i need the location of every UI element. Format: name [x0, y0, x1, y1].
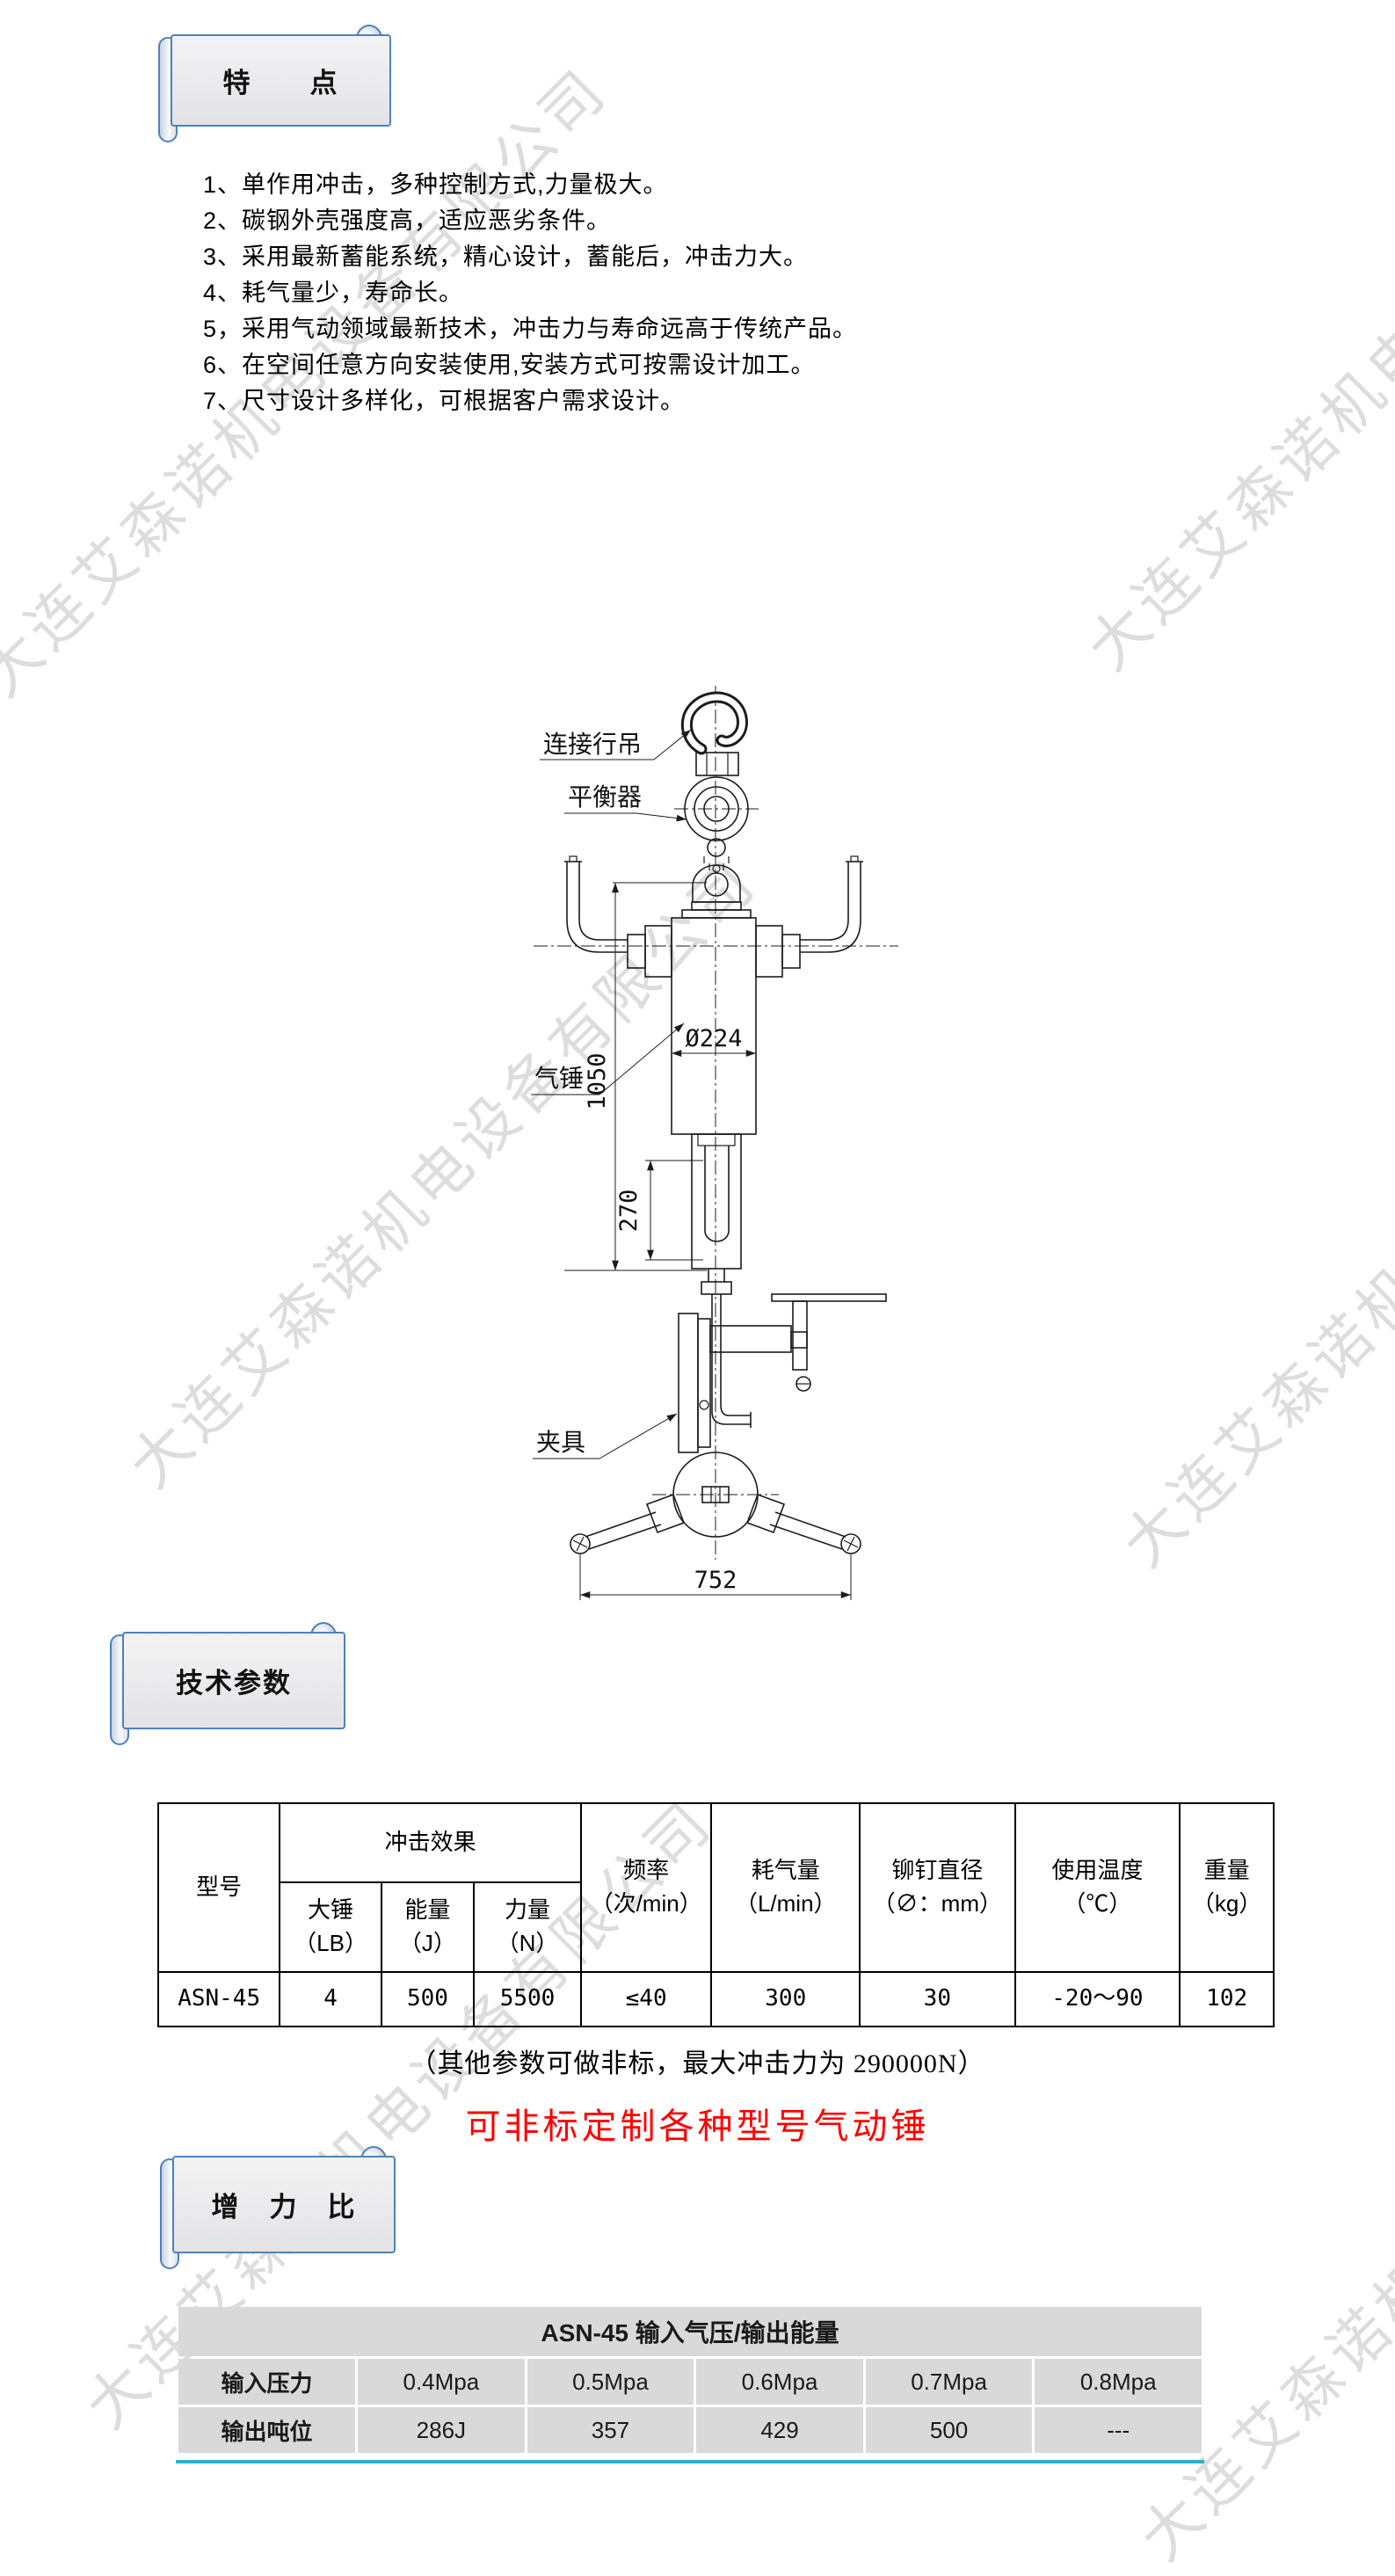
watermark-text: 大连艾森诺机电设备有限公司	[1099, 914, 1395, 1582]
feature-item: 4、耗气量少，寿命长。	[203, 275, 857, 311]
label-hammer: 气锤	[534, 1065, 584, 1092]
col-weight: 重量（kg）	[1180, 1803, 1274, 1972]
feature-item: 2、碳钢外壳强度高，适应恶劣条件。	[203, 203, 857, 239]
ratio-table-title: ASN-45 输入气压/输出能量	[178, 2307, 1202, 2356]
col-air: 耗气量（L/min）	[711, 1803, 860, 1972]
pressure-value: 0.6Mpa	[696, 2359, 863, 2405]
features-list: 1、单作用冲击，多种控制方式,力量极大。 2、碳钢外壳强度高，适应恶劣条件。 3…	[203, 167, 857, 419]
dim-diameter: Ø224	[685, 1025, 742, 1052]
col-impact-group: 冲击效果	[280, 1803, 581, 1882]
cell-weight: 102	[1180, 1972, 1274, 2027]
banner-specs-title: 技术参数	[122, 1632, 345, 1729]
feature-item: 7、尺寸设计多样化，可根据客户需求设计。	[203, 383, 857, 419]
watermark-text: 大连艾森诺机电设备有限公司	[1064, 18, 1395, 685]
ratio-table-wrap: ASN-45 输入气压/输出能量 输入压力 0.4Mpa 0.5Mpa 0.6M…	[176, 2304, 1204, 2463]
banner-features-title: 特 点	[171, 34, 391, 127]
banner-features: 特 点	[158, 25, 391, 142]
feature-item: 5，采用气动领域最新技术，冲击力与寿命远高于传统产品。	[203, 311, 857, 347]
clamp-part	[679, 1294, 886, 1452]
pressure-value: 0.8Mpa	[1035, 2359, 1202, 2405]
dim-1050: 1050	[584, 1052, 611, 1110]
banner-ratio-title: 增 力 比	[172, 2156, 396, 2253]
piston-part	[692, 1134, 751, 1428]
callout-balancer: 平衡器	[564, 783, 687, 819]
swivel-eye-part	[693, 865, 740, 902]
col-energy: 能量（J）	[381, 1882, 474, 1972]
dimension-handle-span: 752	[580, 1554, 851, 1600]
cell-rivet: 30	[860, 1972, 1014, 2027]
custom-order-text: 可非标定制各种型号气动锤	[0, 2098, 1395, 2149]
cell-temp: -20～90	[1015, 1972, 1181, 2027]
ratio-table: ASN-45 输入气压/输出能量 输入压力 0.4Mpa 0.5Mpa 0.6M…	[176, 2304, 1204, 2456]
cell-air: 300	[711, 1972, 860, 2027]
col-rivet: 铆钉直径（∅：mm）	[860, 1803, 1014, 1972]
table-row: 输入压力 0.4Mpa 0.5Mpa 0.6Mpa 0.7Mpa 0.8Mpa	[178, 2359, 1202, 2405]
hook-part	[687, 697, 742, 775]
output-value: 357	[527, 2407, 694, 2453]
col-model: 型号	[158, 1803, 280, 1972]
col-frequency: 频率（次/min）	[581, 1803, 711, 1972]
handle-right-part	[800, 856, 863, 952]
dim-270: 270	[615, 1190, 643, 1233]
row-label-pressure: 输入压力	[178, 2359, 355, 2405]
output-value: 286J	[358, 2407, 525, 2453]
dim-752: 752	[694, 1567, 737, 1594]
label-clamp: 夹具	[536, 1429, 585, 1456]
col-temp: 使用温度（℃）	[1015, 1803, 1181, 1972]
plan-view-part	[570, 1452, 861, 1554]
nonstandard-note: （其他参数可做非标，最大冲击力为 290000N）	[0, 2041, 1395, 2080]
label-balancer: 平衡器	[568, 783, 642, 811]
dimension-stroke: 270	[615, 1161, 703, 1260]
cell-hammer: 4	[280, 1972, 381, 2027]
pressure-value: 0.7Mpa	[866, 2359, 1033, 2405]
cell-model: ASN-45	[158, 1972, 280, 2027]
cell-frequency: ≤40	[581, 1972, 711, 2027]
spec-table: 型号 冲击效果 频率（次/min） 耗气量（L/min） 铆钉直径（∅：mm） …	[157, 1802, 1275, 2027]
col-force: 力量（N）	[474, 1882, 581, 1972]
col-hammer: 大锤（LB）	[280, 1882, 381, 1972]
feature-item: 1、单作用冲击，多种控制方式,力量极大。	[203, 167, 857, 203]
banner-specs: 技术参数	[110, 1622, 345, 1745]
cell-force: 5500	[474, 1972, 581, 2027]
balancer-part	[685, 777, 748, 870]
spec-row: ASN-45 4 500 5500 ≤40 300 30 -20～90 102	[158, 1972, 1274, 2027]
pressure-value: 0.4Mpa	[358, 2359, 525, 2405]
feature-item: 3、采用最新蓄能系统，精心设计，蓄能后，冲击力大。	[203, 239, 857, 275]
output-value: ---	[1035, 2407, 1202, 2453]
pressure-value: 0.5Mpa	[527, 2359, 694, 2405]
dimension-diameter: Ø224	[672, 1025, 756, 1053]
output-value: 500	[866, 2407, 1033, 2453]
cell-energy: 500	[381, 1972, 474, 2027]
row-label-output: 输出吨位	[178, 2407, 355, 2453]
callout-clamp: 夹具	[533, 1414, 677, 1459]
callout-hook: 连接行吊	[540, 730, 691, 760]
label-hook: 连接行吊	[543, 731, 642, 758]
technical-drawing: 1050 270 Ø224 752 连接行吊 平衡器 气锤 夹具	[485, 675, 953, 1609]
feature-item: 6、在空间任意方向安装使用,安装方式可按需设计加工。	[203, 347, 857, 383]
handle-left-part	[564, 856, 628, 952]
banner-ratio: 增 力 比	[160, 2146, 396, 2269]
datasheet-page: { "watermark": { "text": "大连艾森诺机电设备有限公司"…	[0, 0, 1395, 2480]
hammer-body-part	[628, 902, 800, 1134]
table-row: 输出吨位 286J 357 429 500 ---	[178, 2407, 1202, 2453]
output-value: 429	[696, 2407, 863, 2453]
